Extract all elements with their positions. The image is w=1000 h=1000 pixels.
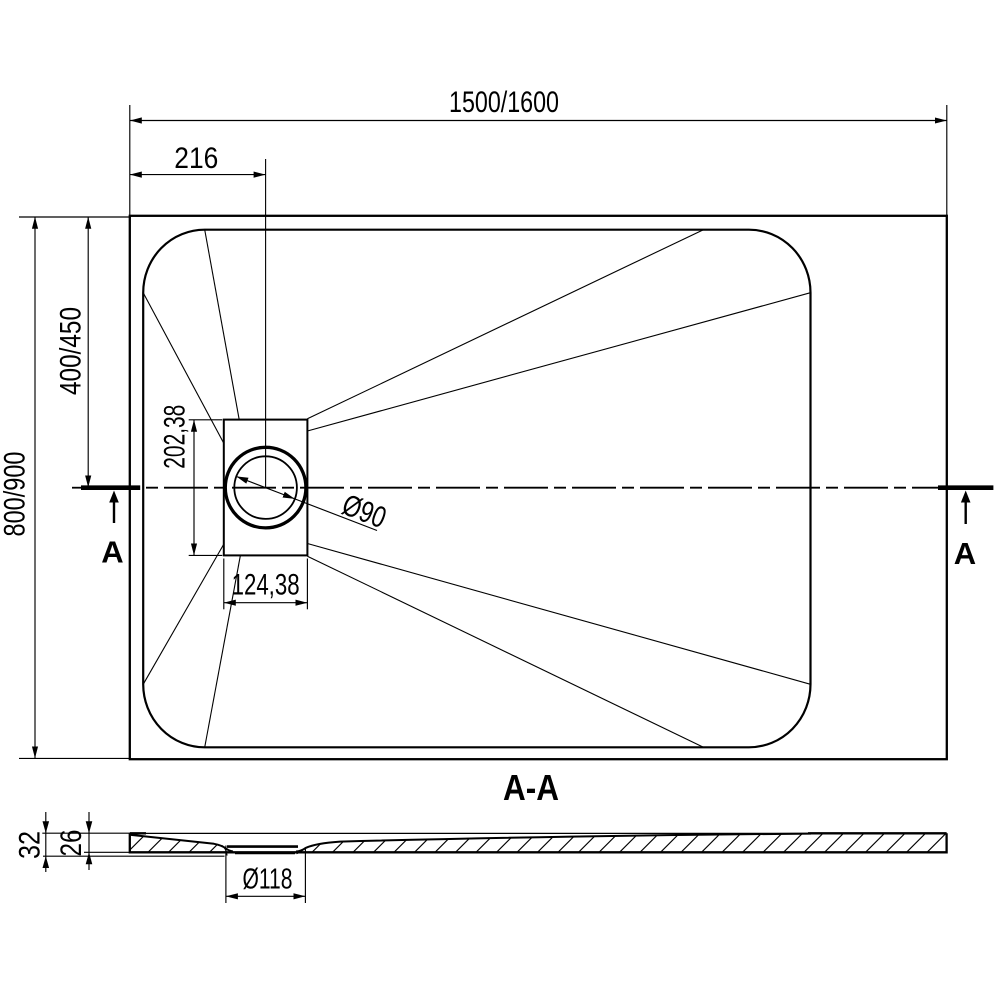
svg-text:216: 216 (174, 142, 218, 175)
svg-text:Ø118: Ø118 (243, 864, 293, 896)
svg-text:32: 32 (14, 831, 47, 859)
svg-text:A-A: A-A (503, 767, 559, 808)
svg-text:124,38: 124,38 (232, 568, 300, 601)
svg-text:1500/1600: 1500/1600 (449, 86, 559, 119)
svg-text:800/900: 800/900 (0, 452, 31, 537)
svg-text:202,38: 202,38 (158, 405, 191, 469)
svg-text:A: A (954, 536, 976, 571)
svg-text:400/450: 400/450 (54, 307, 87, 395)
svg-text:26: 26 (55, 830, 88, 857)
svg-text:A: A (101, 534, 123, 569)
